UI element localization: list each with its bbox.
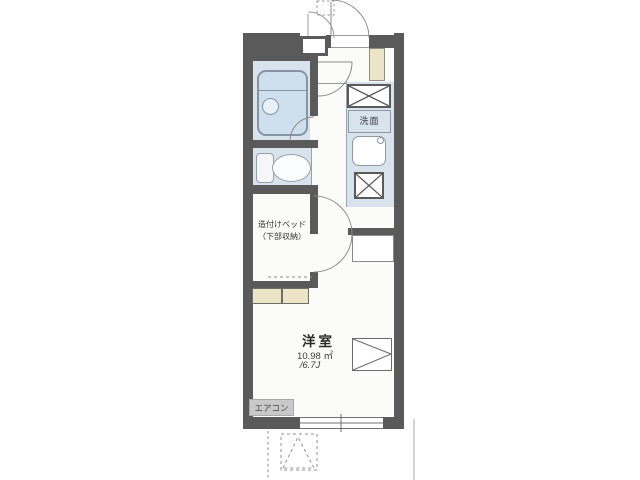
storage-box-diag-2 xyxy=(353,354,391,370)
plan-linework xyxy=(0,0,640,480)
floor-plan: 洗面 エアコン 造付けベッド （下部収納） 洋室 10.98 ㎡ /6.7J xyxy=(0,0,640,480)
room-door-arc xyxy=(314,196,352,272)
dashed-triangle xyxy=(283,437,314,468)
corridor-door-arc xyxy=(318,62,352,96)
storage-box-diag-1 xyxy=(353,339,391,354)
entrance-door-arc-large xyxy=(331,0,369,38)
bathroom-door-arc xyxy=(290,117,314,141)
entrance-door-arc-small xyxy=(308,12,334,38)
